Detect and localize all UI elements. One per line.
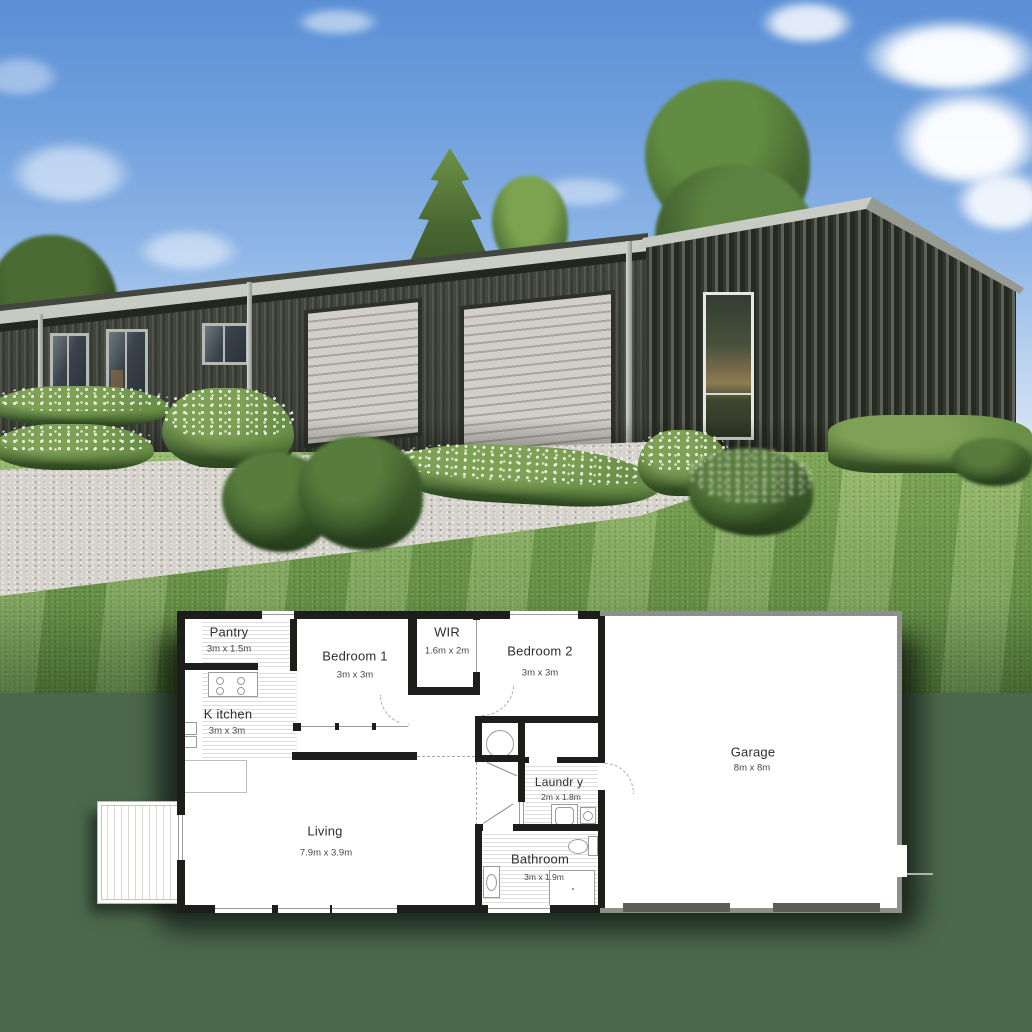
- washer-drum: [555, 807, 574, 825]
- window-3: [202, 323, 249, 365]
- room-dims-kitchen: 3m x 3m: [209, 726, 245, 737]
- room-dims-bedroom1: 3m x 3m: [337, 670, 373, 681]
- flower-hedge-row: [0, 386, 170, 426]
- room-label-laundry: Laundr y: [535, 775, 583, 789]
- room-label-bedroom2: Bedroom 2: [507, 644, 572, 659]
- kitchen-wall: [177, 663, 258, 670]
- room-dims: 3m x 1.5m: [207, 644, 251, 655]
- wc-basin-icon: [486, 730, 514, 758]
- burner-icon: [216, 677, 224, 685]
- flower-hedge-row: [0, 424, 154, 470]
- toilet-cistern-icon: [588, 836, 598, 856]
- vanity-icon: [483, 866, 500, 898]
- living-window: [332, 905, 397, 913]
- bedroom1-door-swing: [380, 695, 410, 725]
- render-scene: Pantry 3m x 1.5m Bedroom 1 3m x 3m WIR 1…: [0, 0, 1032, 1032]
- room-dims-living: 7.9m x 3.9m: [300, 848, 352, 859]
- garage-roller-door-1: [623, 903, 730, 912]
- garage-side-step-line: [907, 873, 933, 875]
- window-mullion: [223, 326, 225, 362]
- bedroom1-bottom-wall: [292, 752, 417, 760]
- laundry-slider-gap: [518, 802, 525, 824]
- vanity-basin: [486, 874, 497, 891]
- room-dims-bedroom2: 3m x 3m: [522, 668, 558, 679]
- room-dims-pantry: 3m x 1.5m: [207, 644, 251, 655]
- room-dims: 3m x 3m: [522, 668, 558, 679]
- garage-roller-door-2: [773, 903, 880, 912]
- toilet-bowl-icon: [568, 839, 588, 854]
- stove-icon: [208, 672, 258, 697]
- room-name: K itchen: [204, 707, 253, 722]
- living-window: [215, 905, 272, 913]
- room-name: Bedroom 1: [322, 649, 387, 664]
- laundry-garage-door-gap: [598, 763, 605, 790]
- room-name: Bathroom: [511, 852, 569, 867]
- shower-drain: [572, 888, 574, 890]
- laundry-door-gap: [529, 757, 557, 763]
- bathroom-window: [488, 905, 550, 913]
- cloud: [295, 8, 380, 34]
- room-name: Garage: [731, 745, 776, 760]
- bathroom-door-gap: [483, 824, 513, 831]
- room-dims: 3m x 3m: [337, 670, 373, 681]
- kitchen-bench: [180, 760, 247, 793]
- wir-bottom-wall: [412, 687, 480, 695]
- deck: [98, 802, 183, 903]
- room-label-kitchen: K itchen: [204, 707, 253, 722]
- wc-door-leaf: [487, 762, 518, 776]
- room-dims-garage: 8m x 8m: [734, 763, 770, 774]
- room-dims: 3m x 3m: [209, 726, 245, 737]
- house-left-wall: [177, 611, 185, 913]
- cloud: [760, 0, 855, 42]
- bedroom2-bottom-wall: [475, 716, 600, 723]
- bedroom1-door-gap: [408, 695, 417, 723]
- glass-door-rail: [706, 393, 751, 395]
- room-name: Living: [307, 824, 342, 839]
- sink-bowl: [583, 811, 593, 821]
- room-dims: 2m x 1.8m: [541, 792, 581, 802]
- wall-stub: [293, 723, 301, 731]
- room-dims: 7.9m x 3.9m: [300, 848, 352, 859]
- pantry-divider-wall: [290, 611, 297, 671]
- wir-robe-opening: [473, 620, 480, 672]
- bedroom2-door-swing: [481, 685, 514, 716]
- room-dims-bathroom: 3m x 1.9m: [524, 872, 564, 882]
- cloud: [862, 18, 1032, 90]
- garage-side-notch: [895, 845, 907, 877]
- hall-bath-boundary: [476, 757, 477, 830]
- house-garage-wall: [598, 611, 605, 913]
- window-mullion-tick: [335, 723, 339, 730]
- room-label-pantry: Pantry: [210, 625, 249, 640]
- pantry-window: [262, 611, 294, 619]
- room-name: Laundr y: [535, 775, 583, 789]
- room-name: WIR: [434, 625, 460, 640]
- floorplan: Pantry 3m x 1.5m Bedroom 1 3m x 3m WIR 1…: [177, 611, 902, 913]
- garage-top-wall: [600, 611, 902, 616]
- room-dims-laundry: 2m x 1.8m: [541, 792, 581, 802]
- room-label-bathroom: Bathroom: [511, 852, 569, 867]
- room-label-bedroom1: Bedroom 1: [322, 649, 387, 664]
- bedroom2-window: [510, 611, 578, 619]
- room-name: Bedroom 2: [507, 644, 572, 659]
- laundry-ext-door-swing: [605, 763, 634, 794]
- deck-slider-gap: [177, 815, 185, 860]
- burner-icon: [216, 687, 224, 695]
- hall-living-boundary: [417, 756, 475, 757]
- room-dims: 1.6m x 2m: [425, 646, 469, 657]
- laundry-sink-icon: [580, 807, 596, 824]
- burner-icon: [237, 677, 245, 685]
- burner-icon: [237, 687, 245, 695]
- bathroom-left-wall: [475, 824, 482, 905]
- cloud: [136, 228, 241, 270]
- room-label-garage: Garage: [731, 745, 776, 760]
- living-window: [278, 905, 330, 913]
- room-dims: 8m x 8m: [734, 763, 770, 774]
- room-name: Pantry: [210, 625, 249, 640]
- bedroom1-window-band: [301, 723, 408, 730]
- window-mullion-tick: [372, 723, 376, 730]
- room-dims-wir: 1.6m x 2m: [425, 646, 469, 657]
- bathroom-door-leaf: [483, 803, 514, 823]
- room-label-wir: WIR: [434, 625, 460, 640]
- room-dims: 3m x 1.9m: [524, 872, 564, 882]
- room-label-living: Living: [307, 824, 342, 839]
- cloud: [8, 140, 133, 202]
